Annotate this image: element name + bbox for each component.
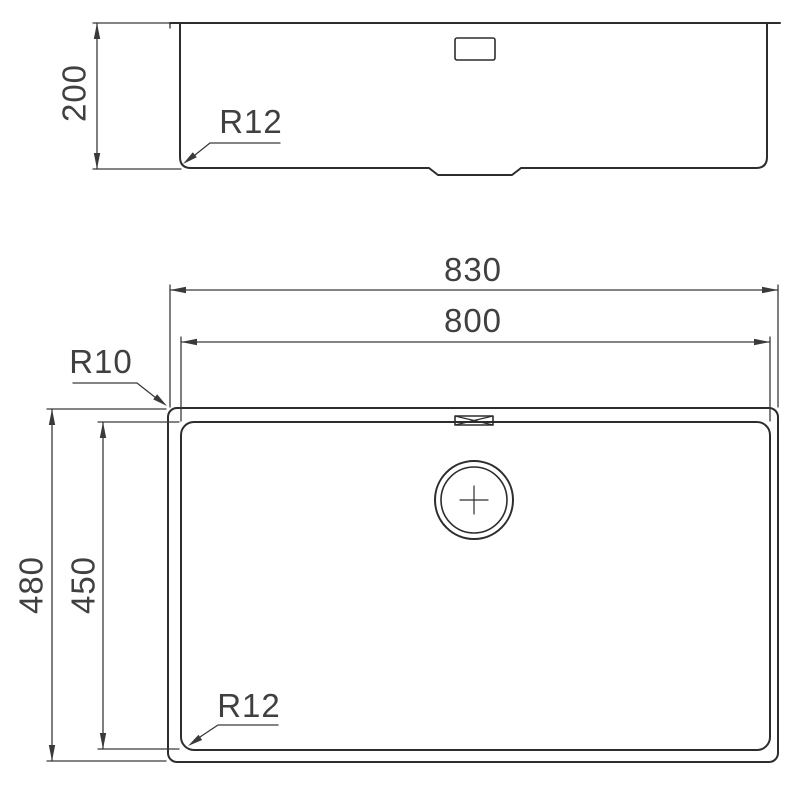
dim-200-arrow-top xyxy=(94,23,100,39)
bowl-outline xyxy=(180,23,767,175)
radius-r12-side-label: R12 xyxy=(219,103,283,140)
radius-r12-side-leader xyxy=(195,143,280,155)
dim-800-label: 800 xyxy=(444,302,502,339)
overflow-marker-cross xyxy=(455,416,493,425)
radius-r10-leader xyxy=(73,383,156,398)
radius-r10-arrow xyxy=(153,394,167,406)
overflow-hole-icon xyxy=(455,38,495,60)
dim-480-arrow-bottom xyxy=(49,745,55,761)
plan-view-dimensions xyxy=(47,285,778,761)
drain-crosshair-icon xyxy=(460,486,488,514)
dim-480-arrow-top xyxy=(49,409,55,425)
radius-r12-plan-leader xyxy=(200,725,278,737)
dim-450-arrow-bottom xyxy=(100,733,106,749)
plan-view-arrowheads xyxy=(49,287,778,761)
plan-view-labels: 830 800 480 450 R10 R12 xyxy=(13,251,503,724)
dim-830-label: 830 xyxy=(444,251,502,288)
dim-200-label: 200 xyxy=(56,64,93,122)
dim-830-arrow-left xyxy=(170,287,186,293)
drawing-canvas: 200 R12 xyxy=(0,0,800,790)
radius-r10-label: R10 xyxy=(69,343,133,380)
radius-r12-plan-label: R12 xyxy=(217,687,281,724)
dim-450-label: 450 xyxy=(65,556,102,614)
dim-480-label: 480 xyxy=(13,556,50,614)
dim-830-arrow-right xyxy=(762,287,778,293)
dim-450-arrow-top xyxy=(100,422,106,438)
side-view-dimensions xyxy=(93,23,280,169)
side-view-labels: 200 R12 xyxy=(56,64,283,140)
dim-200-arrow-bottom xyxy=(94,153,100,169)
sink-technical-drawing: 200 R12 xyxy=(0,0,800,790)
side-view xyxy=(170,23,780,175)
dim-800-arrow-left xyxy=(181,339,197,345)
side-view-arrowheads xyxy=(94,23,197,169)
radius-r12-side-arrow xyxy=(183,152,197,164)
dim-800-arrow-right xyxy=(754,339,770,345)
